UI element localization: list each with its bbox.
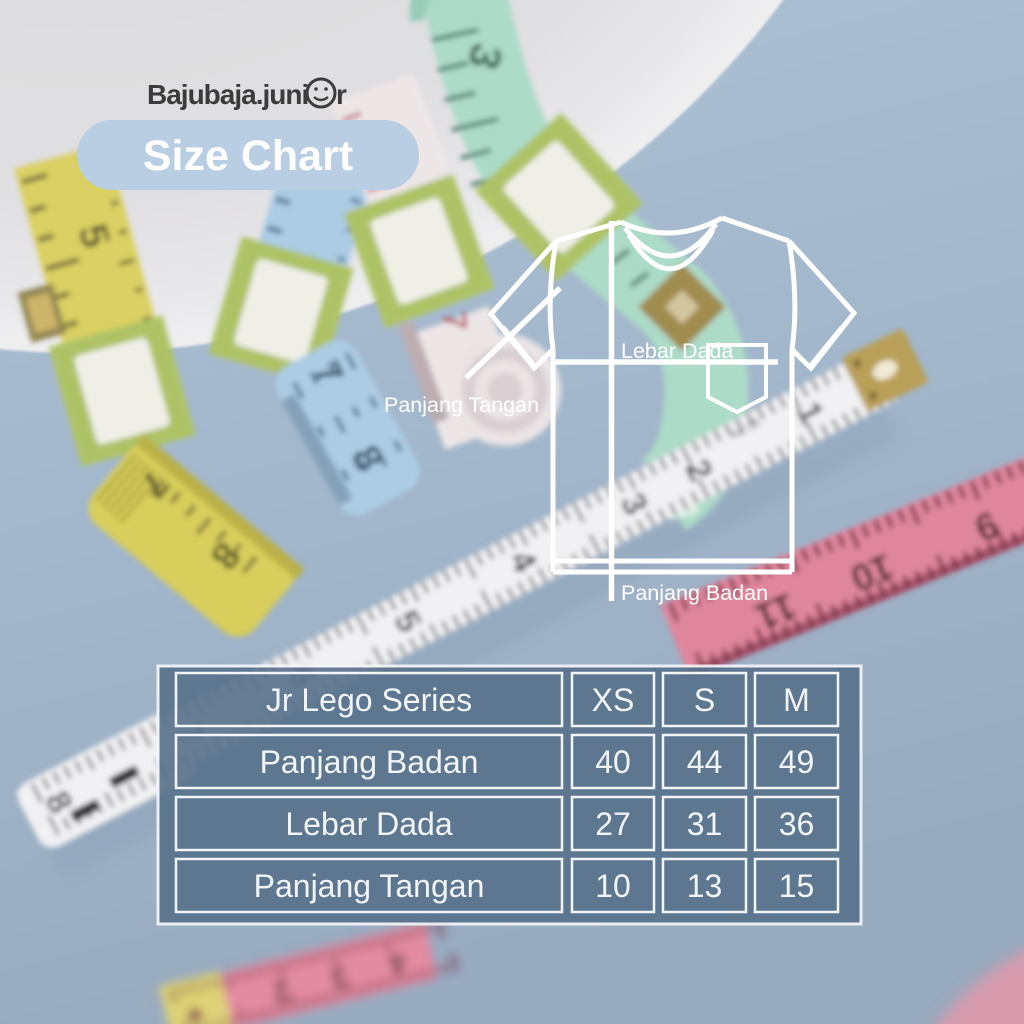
svg-text:49: 49: [779, 744, 815, 780]
svg-text:31: 31: [687, 806, 723, 842]
svg-text:Panjang Tangan: Panjang Tangan: [254, 868, 485, 904]
svg-text:r: r: [336, 79, 347, 110]
svg-text:S: S: [694, 682, 715, 718]
svg-text:Size Chart: Size Chart: [143, 132, 353, 180]
svg-text:36: 36: [779, 806, 815, 842]
svg-text:Lebar Dada: Lebar Dada: [621, 339, 733, 363]
svg-text:40: 40: [595, 744, 631, 780]
svg-text:27: 27: [595, 806, 631, 842]
svg-text:15: 15: [779, 868, 815, 904]
svg-text:13: 13: [687, 868, 723, 904]
svg-text:Jr Lego Series: Jr Lego Series: [266, 682, 472, 718]
svg-text:M: M: [783, 682, 810, 718]
svg-text:Panjang Tangan: Panjang Tangan: [384, 393, 539, 417]
svg-text:10: 10: [595, 868, 631, 904]
svg-text:Lebar Dada: Lebar Dada: [285, 806, 452, 842]
svg-text:Bajubaja.juni: Bajubaja.juni: [147, 79, 308, 110]
svg-text:XS: XS: [592, 682, 635, 718]
svg-text:44: 44: [687, 744, 723, 780]
svg-text:Panjang Badan: Panjang Badan: [260, 744, 479, 780]
svg-text:Panjang Badan: Panjang Badan: [621, 581, 768, 605]
